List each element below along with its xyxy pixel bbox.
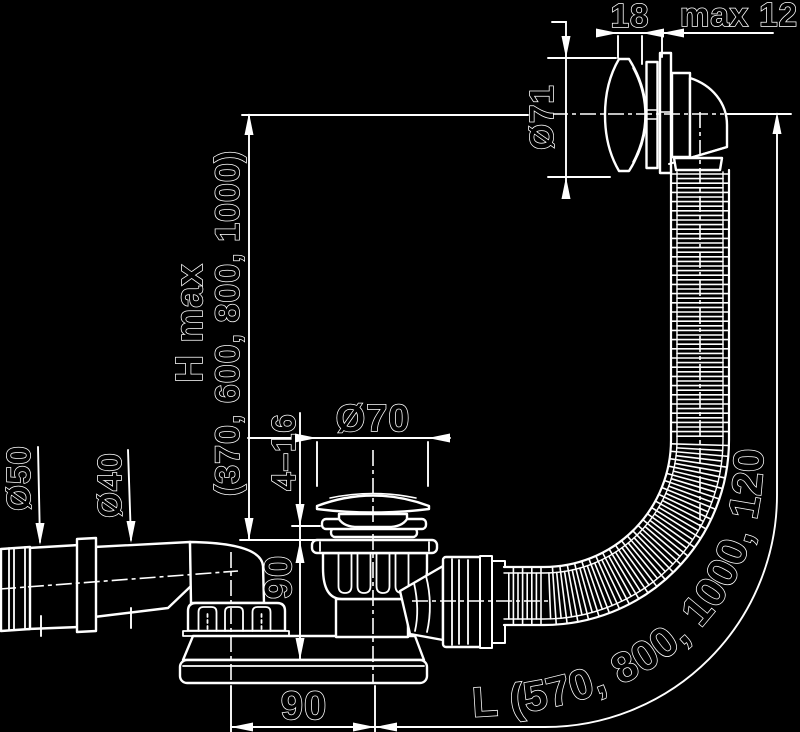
arrow-clamp-top xyxy=(296,504,305,526)
height-values-label: (370, 600, 800, 1000) xyxy=(209,150,247,496)
technical-drawing: 18 max 12 Ø71 H max (370, 600, 800, 1000… xyxy=(0,0,800,732)
hose-nut xyxy=(443,557,482,647)
inlet-pipe-diameter-label: Ø40 xyxy=(91,452,128,517)
wall-thickness-max-label: max 12 xyxy=(680,0,798,33)
plug-diameter-label: Ø70 xyxy=(336,398,411,440)
clamp-range-label: 4–16 xyxy=(265,413,302,490)
overflow-elbow-body xyxy=(690,78,727,158)
inlet-pipe xyxy=(1,538,191,632)
outlet-pipe-diameter-label: Ø50 xyxy=(0,445,37,510)
arrow-o71-bottom xyxy=(562,177,571,199)
overflow-cap xyxy=(605,59,646,171)
overflow-cap-diameter-label: Ø71 xyxy=(523,84,560,149)
inlet-offset-label: 90 xyxy=(281,684,328,728)
arrow-hose-length-end xyxy=(773,112,782,134)
arrow-90h-right xyxy=(353,723,375,732)
body-height-label: 90 xyxy=(258,555,300,599)
arrow-hmax-bottom xyxy=(245,518,254,540)
arrow-o40 xyxy=(127,521,136,543)
height-max-label: H max xyxy=(169,263,211,382)
overflow-elbow-flange xyxy=(672,73,690,157)
drain-base xyxy=(180,636,427,683)
arrow-o71-top xyxy=(562,36,571,58)
drain-flange xyxy=(312,540,437,553)
arrow-o70-right xyxy=(428,434,450,443)
arrow-90h-left xyxy=(231,723,253,732)
corrugated-hose xyxy=(504,170,729,625)
clamp-extension-ticks xyxy=(240,526,332,540)
overflow-head xyxy=(605,53,727,173)
arrow-o50 xyxy=(36,523,45,545)
arrow-hose-length-start xyxy=(375,723,397,732)
drawing-canvas: 18 max 12 Ø71 H max (370, 600, 800, 1000… xyxy=(0,0,800,732)
arrow-hmax-top xyxy=(245,113,254,135)
cap-offset-label: 18 xyxy=(611,0,650,34)
product-drawing xyxy=(1,53,729,683)
